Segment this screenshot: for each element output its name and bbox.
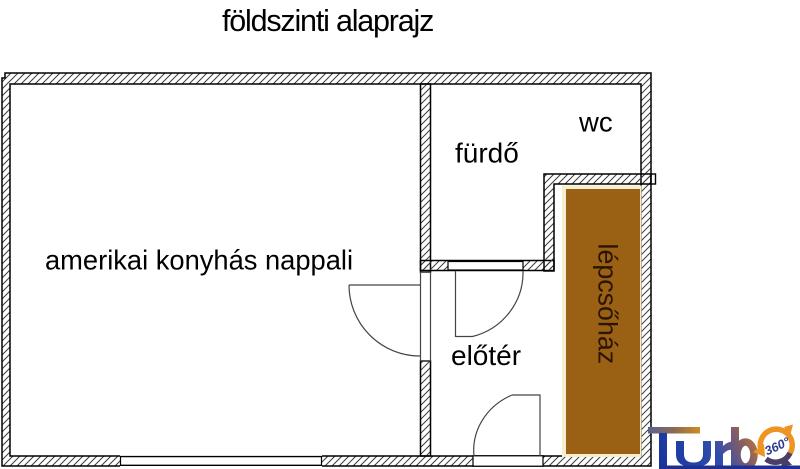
svg-text:fürdő: fürdő	[455, 138, 519, 169]
svg-text:földszinti alaprajz: földszinti alaprajz	[222, 4, 433, 38]
svg-text:wc: wc	[578, 107, 613, 138]
svg-text:előtér: előtér	[451, 340, 521, 371]
svg-text:amerikai konyhás nappali: amerikai konyhás nappali	[45, 245, 353, 276]
svg-text:lépcsőház: lépcsőház	[593, 244, 623, 365]
